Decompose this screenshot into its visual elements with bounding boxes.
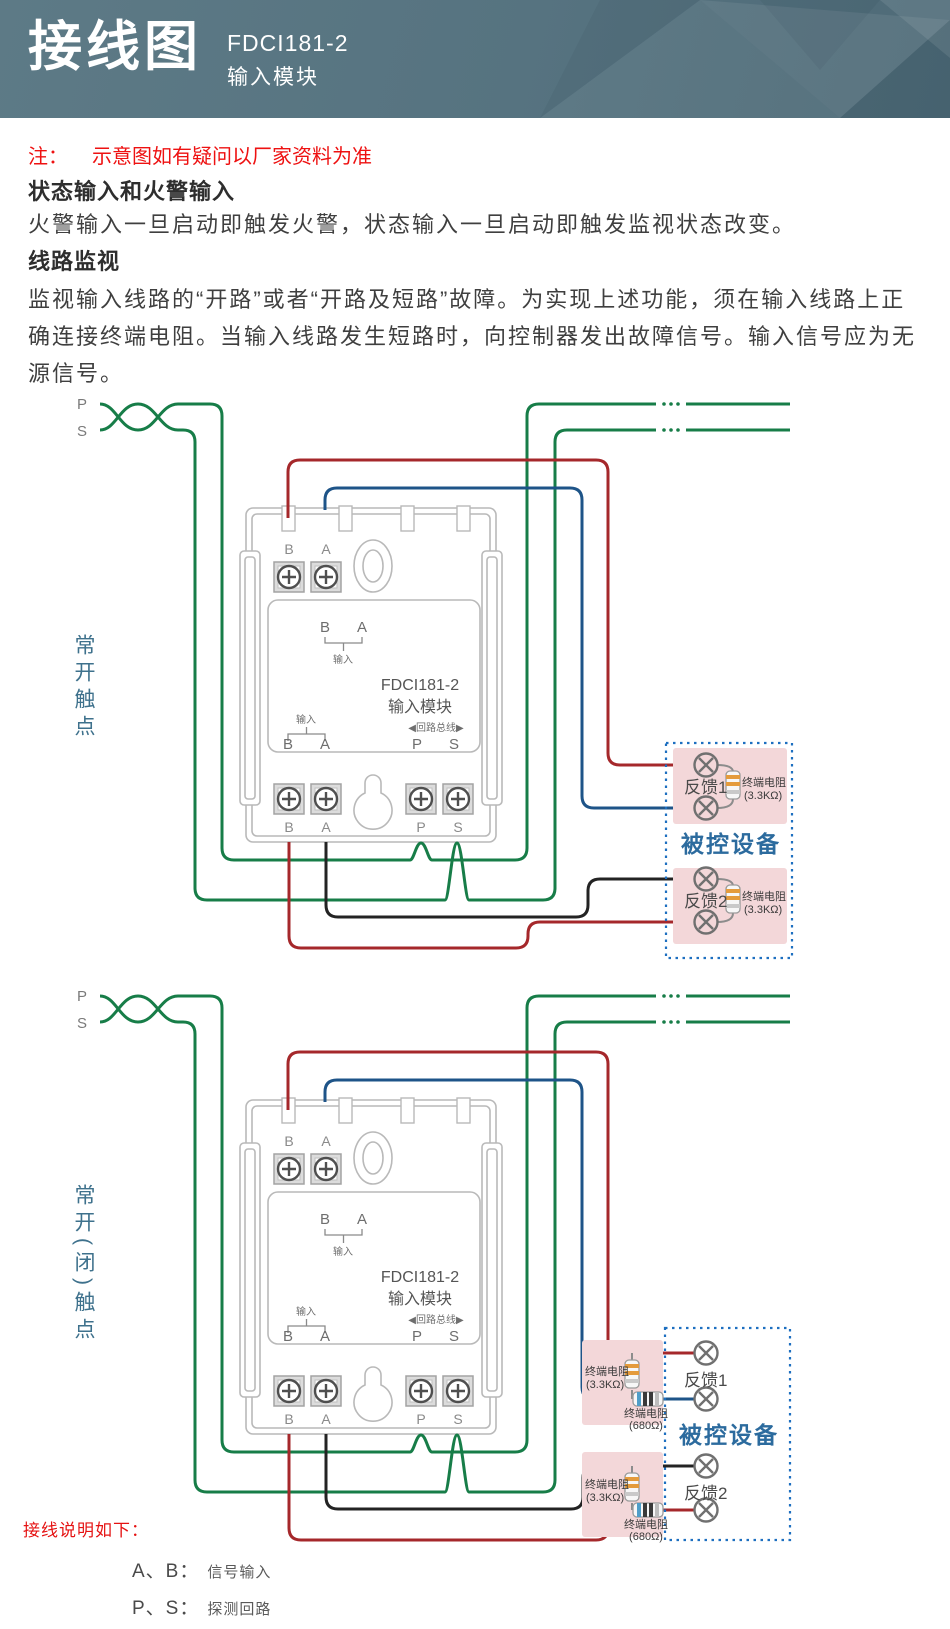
res-680-name-fb1-2: 终端电阻	[624, 1406, 668, 1420]
plate-label-p: P	[412, 1328, 422, 1345]
screw-terminal-s-bottom	[443, 1376, 473, 1406]
screw-terminal-a-bottom	[311, 1376, 341, 1406]
mount-notch	[457, 506, 470, 531]
wire-b-to-feedback2-1	[289, 842, 695, 948]
plate-label-b-bottom: B	[283, 1328, 293, 1345]
screw-terminal-s-bottom	[443, 784, 473, 814]
feedback1-label-1: 反馈1	[684, 778, 727, 797]
wire-a-to-feedback2-1	[326, 842, 695, 917]
resistor-value-fb2-1: (3.3KΩ)	[744, 904, 782, 916]
screw-terminal-b-bottom	[274, 784, 304, 814]
input-label-top: 输入	[333, 1245, 353, 1258]
screw-terminal-a-bottom	[311, 784, 341, 814]
module-name-line2: 输入模块	[388, 698, 452, 716]
screw-terminal-p-bottom	[406, 1376, 436, 1406]
terminal-resistor-3k3-fb1	[726, 771, 740, 799]
pad-label-s: S	[453, 819, 462, 835]
terminal-resistor-680-fb1	[633, 1392, 663, 1406]
resistor-value-fb1-1: (3.3KΩ)	[744, 790, 782, 802]
res-33k-name-fb1-2: 终端电阻	[585, 1364, 629, 1378]
bus-break-dots-1	[662, 402, 680, 432]
legend-title: 接线说明如下：	[23, 1516, 149, 1541]
pad-label-a: A	[321, 819, 331, 835]
res-33k-value-fb1-2: (3.3KΩ)	[586, 1379, 624, 1391]
terminal-label-b-top: B	[284, 541, 293, 557]
feedback2-label-1: 反馈2	[684, 892, 727, 911]
bus-label-p-1: P	[77, 396, 87, 413]
legend-term-ps: P、S：	[132, 1593, 199, 1620]
mount-notch	[401, 1098, 414, 1123]
res-680-value-fb1-2: (680Ω)	[629, 1420, 663, 1432]
res-680-value-fb2-2: (680Ω)	[629, 1531, 663, 1543]
screw-terminal-p-bottom	[406, 784, 436, 814]
screw-terminal-b-bottom	[274, 1376, 304, 1406]
device-title-2: 被控设备	[679, 1422, 779, 1448]
screw-terminal-b-top	[274, 562, 304, 592]
feedback1-label-2: 反馈1	[684, 1371, 727, 1390]
contact-type-label-2: 常开(闭)触点	[68, 1184, 98, 1345]
side-rail-right	[482, 1143, 502, 1397]
bus-label-p-2: P	[77, 988, 87, 1005]
terminal-label-a-top: A	[321, 1133, 331, 1149]
mount-notch	[401, 506, 414, 531]
pad-label-b: B	[284, 1411, 293, 1427]
res-33k-value-fb2-2: (3.3KΩ)	[586, 1492, 624, 1504]
plate-label-b-bottom: B	[283, 736, 293, 753]
module-name-line2: 输入模块	[388, 1290, 452, 1308]
bus-label-s-2: S	[77, 1015, 87, 1032]
side-rail-left	[240, 1143, 260, 1397]
resistor-name-fb2-1: 终端电阻	[742, 889, 786, 903]
mount-notch	[339, 506, 352, 531]
plate-label-a-bottom: A	[320, 736, 330, 753]
wiring-schematic: B A B A 输入 FDCI181-2 输入模块	[0, 0, 950, 1629]
terminal-label-b-top: B	[284, 1133, 293, 1149]
plate-label-p: P	[412, 736, 422, 753]
pad-label-p: P	[416, 819, 425, 835]
resistor-name-fb1-1: 终端电阻	[742, 775, 786, 789]
plate-label-a-bottom: A	[320, 1328, 330, 1345]
pad-label-b: B	[284, 819, 293, 835]
terminal-resistor-680-fb2	[633, 1503, 663, 1517]
input-label-bottom: 输入	[296, 1305, 316, 1318]
terminal-label-a-top: A	[321, 541, 331, 557]
module-name-line1: FDCI181-2	[381, 1269, 459, 1286]
legend-item-ab: A、B： 信号输入	[132, 1556, 271, 1583]
legend-desc-ab: 信号输入	[207, 1561, 271, 1582]
screw-terminal-a-top	[311, 1154, 341, 1184]
plate-label-s: S	[449, 1328, 459, 1345]
module-name-line1: FDCI181-2	[381, 677, 459, 694]
plate-label-s: S	[449, 736, 459, 753]
mount-notch	[339, 1098, 352, 1123]
input-module-1: B A B A 输入 FDCI181-2 输入模块	[240, 506, 502, 842]
legend-item-ps: P、S： 探测回路	[132, 1593, 271, 1620]
side-rail-left	[240, 551, 260, 805]
pad-label-a: A	[321, 1411, 331, 1427]
plate-label-b: B	[320, 619, 330, 636]
input-label-bottom: 输入	[296, 713, 316, 726]
controlled-device-1: 反馈1 终端电阻 (3.3KΩ) 被控设备 反馈2 终端电阻 (3.3KΩ)	[666, 743, 792, 958]
page: 接线图 FDCI181-2 输入模块 注： 示意图如有疑问以厂家资料为准 状态输…	[0, 0, 950, 1629]
pad-label-s: S	[453, 1411, 462, 1427]
plate-label-b: B	[320, 1211, 330, 1228]
legend-desc-ps: 探测回路	[207, 1598, 271, 1619]
loop-bus-label: ◀回路总线▶	[408, 721, 464, 734]
res-33k-name-fb2-2: 终端电阻	[585, 1477, 629, 1491]
device-title-1: 被控设备	[681, 831, 781, 857]
mount-notch	[457, 1098, 470, 1123]
plate-label-a: A	[357, 1211, 367, 1228]
input-label-top: 输入	[333, 653, 353, 666]
loop-bus-label: ◀回路总线▶	[408, 1313, 464, 1326]
side-rail-right	[482, 551, 502, 805]
pad-label-p: P	[416, 1411, 425, 1427]
feedback2-label-2: 反馈2	[684, 1484, 727, 1503]
res-680-name-fb2-2: 终端电阻	[624, 1517, 668, 1531]
input-module-2: B A B A 输入 FDCI181-2 输入模块 输入	[240, 1098, 502, 1434]
bus-break-dots-2	[662, 994, 680, 1024]
plate-label-a: A	[357, 619, 367, 636]
screw-terminal-a-top	[311, 562, 341, 592]
screw-terminal-b-top	[274, 1154, 304, 1184]
bus-label-s-1: S	[77, 423, 87, 440]
contact-type-label-1: 常开触点	[68, 634, 98, 742]
legend-term-ab: A、B：	[132, 1556, 199, 1583]
terminal-resistor-3k3-fb2	[726, 885, 740, 913]
